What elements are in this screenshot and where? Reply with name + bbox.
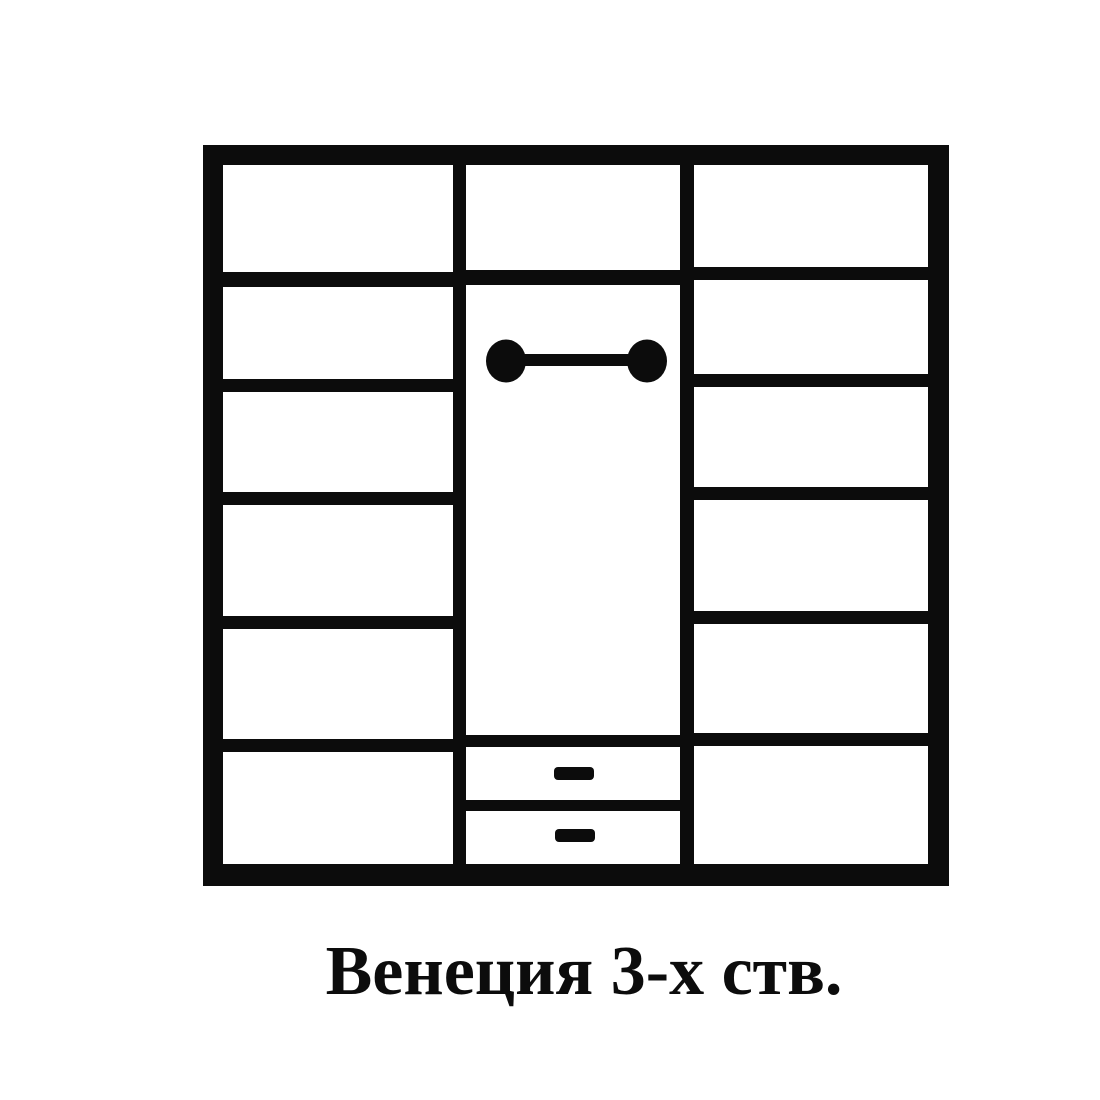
- svg-text:Венеция 3-х ств.: Венеция 3-х ств.: [326, 933, 843, 1010]
